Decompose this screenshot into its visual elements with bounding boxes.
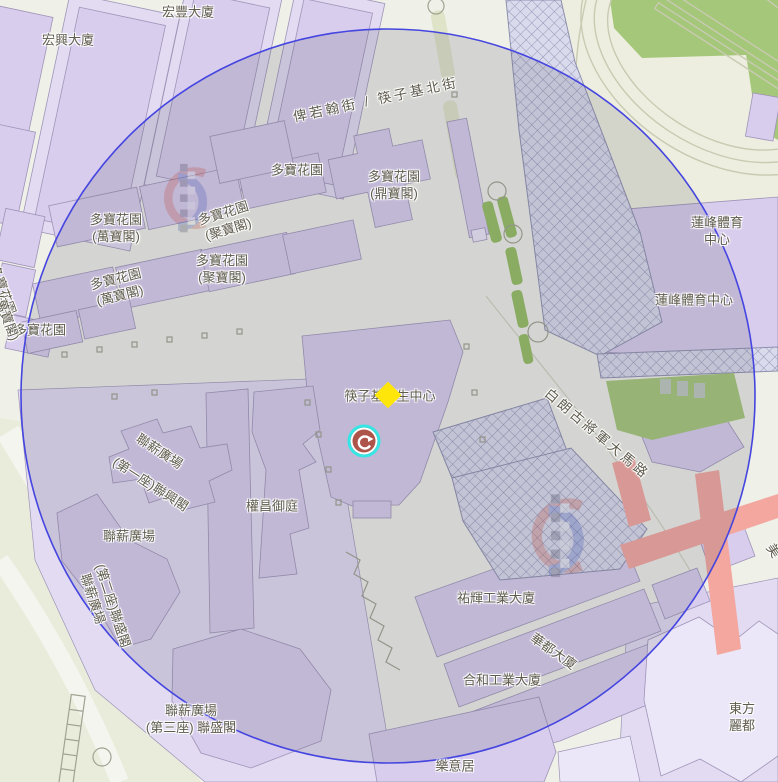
building-oriental-pearl (644, 617, 778, 782)
poi-glyph (354, 431, 374, 451)
map-viewport[interactable]: 宏興大廈宏豐大廈多寶花園多寶花園 (鼎寶閣)多寶花園 (萬寶閣)多寶花園 (聚寶… (0, 0, 778, 782)
health-centre-poi-icon[interactable] (348, 425, 381, 458)
